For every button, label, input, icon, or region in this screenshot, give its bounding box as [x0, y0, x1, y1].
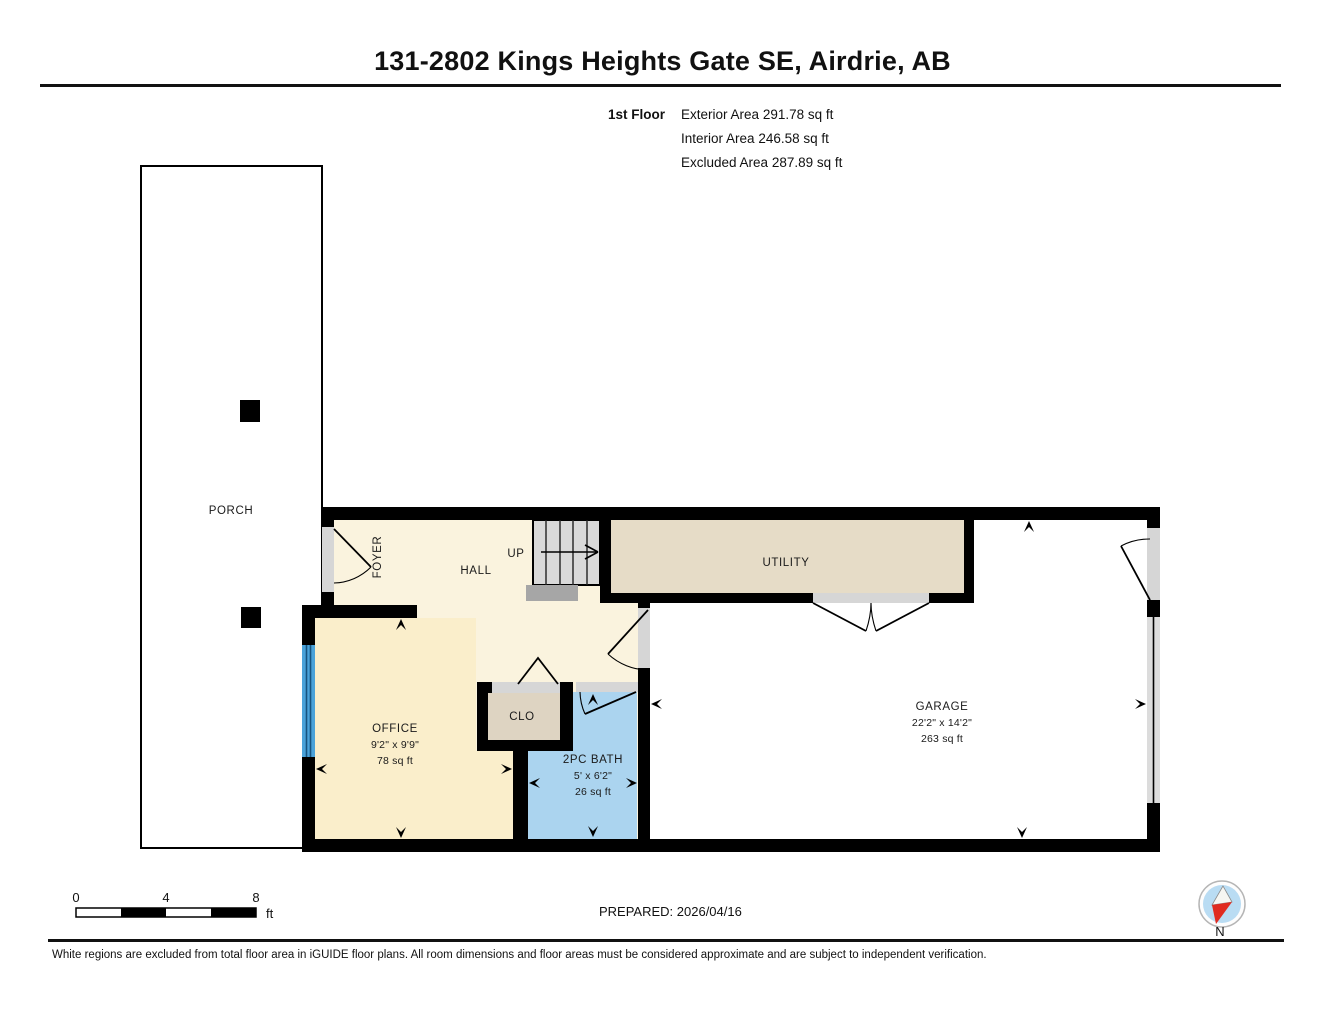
office-dims: 9'2" x 9'9"	[371, 739, 419, 751]
svg-text:8: 8	[252, 890, 259, 905]
utility-label: UTILITY	[762, 557, 809, 569]
porch: PORCH	[141, 166, 322, 848]
garage-overhead-door	[1147, 617, 1160, 803]
office-sqft: 78 sq ft	[377, 755, 413, 767]
svg-text:0: 0	[72, 890, 79, 905]
bath-dims: 5' x 6'2"	[574, 770, 612, 782]
compass: N	[1199, 881, 1245, 939]
floorplan-page: 131-2802 Kings Heights Gate SE, Airdrie,…	[0, 0, 1325, 1024]
bath-label: 2PC BATH	[563, 754, 623, 766]
porch-post	[240, 400, 260, 422]
prepared-date: PREPARED: 2026/04/16	[599, 904, 742, 919]
office-label: OFFICE	[372, 723, 418, 735]
garage-label: GARAGE	[916, 701, 969, 713]
bath-sqft: 26 sq ft	[575, 786, 611, 798]
compass-n-label: N	[1215, 924, 1224, 939]
garage-dims: 22'2" x 14'2"	[912, 717, 972, 729]
office-window	[302, 645, 315, 757]
porch-post	[241, 607, 261, 628]
scale-bar: 0 4 8 ft	[72, 890, 273, 921]
porch-label: PORCH	[209, 505, 254, 517]
hall-label: HALL	[460, 565, 491, 577]
stair-landing	[526, 585, 578, 601]
svg-text:4: 4	[162, 890, 169, 905]
svg-text:ft: ft	[266, 906, 274, 921]
disclaimer-text: White regions are excluded from total fl…	[52, 949, 987, 961]
footer-divider	[48, 939, 1284, 942]
stairs-up-label: UP	[507, 548, 524, 560]
floor-plan: PORCH	[0, 0, 1325, 1024]
foyer-label: FOYER	[372, 536, 384, 579]
closet-label: CLO	[509, 711, 534, 723]
garage-sqft: 263 sq ft	[921, 733, 963, 745]
